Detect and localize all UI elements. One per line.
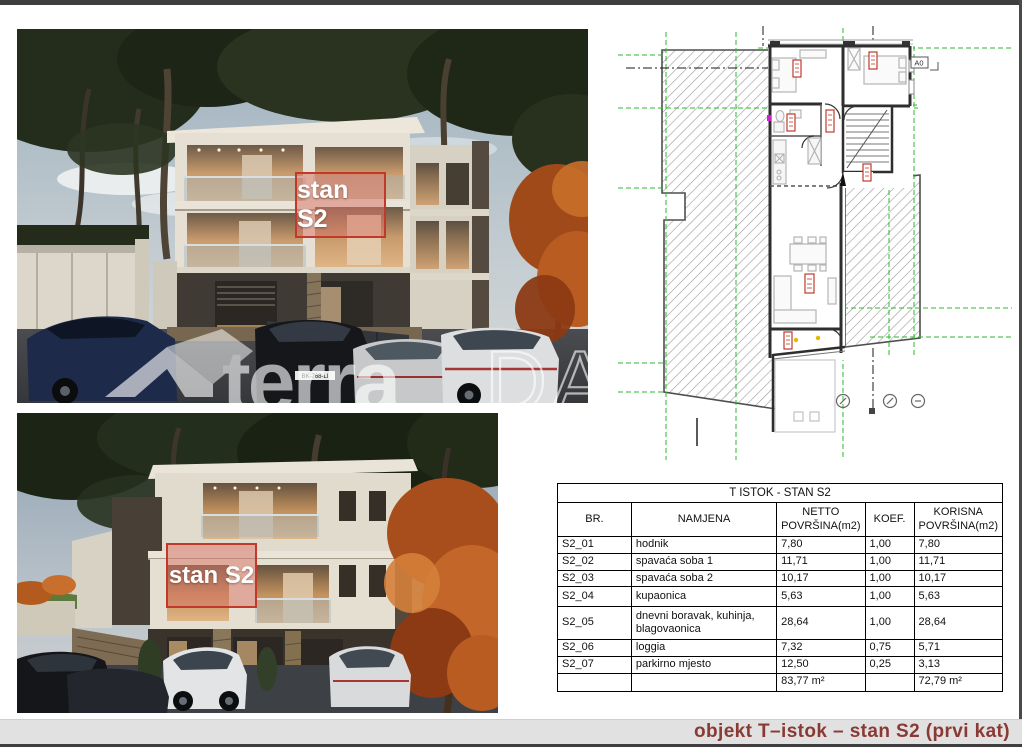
- table-row: S2_04 kupaonica 5,63 1,00 5,63: [558, 587, 1003, 607]
- col-header-koef: KOEF.: [865, 503, 914, 537]
- cell-netto: 11,71: [777, 553, 865, 570]
- watermark-brand-text: terra: [222, 334, 402, 403]
- cell-netto: 10,17: [777, 570, 865, 587]
- section-marker: A0: [911, 57, 938, 70]
- cell-korisna: 7,80: [914, 537, 1002, 554]
- col-header-namjena: NAMJENA: [631, 503, 776, 537]
- cell-korisna: 5,63: [914, 587, 1002, 607]
- watermark-outline-text: DALMAT: [485, 334, 588, 403]
- table-row: S2_03 spavaća soba 2 10,17 1,00 10,17: [558, 570, 1003, 587]
- col-header-korisna: KORISNA POVRŠINA(m2): [914, 503, 1002, 537]
- table-row: S2_06 loggia 7,32 0,75 5,71: [558, 640, 1003, 657]
- page-border-top: [0, 0, 1022, 5]
- autumn-tree: [509, 161, 588, 343]
- cell-netto: 7,80: [777, 537, 865, 554]
- cell-netto: 12,50: [777, 657, 865, 674]
- cell-br: S2_06: [558, 640, 632, 657]
- stan-s2-overlay-photo1: stan S2: [295, 172, 386, 238]
- cell-koef: 1,00: [865, 570, 914, 587]
- cell-br: S2_01: [558, 537, 632, 554]
- section-marker-label: A0: [914, 59, 923, 68]
- cell-korisna: 5,71: [914, 640, 1002, 657]
- cell-br: S2_05: [558, 607, 632, 640]
- render-photo-corner: [17, 413, 498, 713]
- floor-plan: A0: [618, 18, 1018, 480]
- col-header-netto: NETTO POVRŠINA(m2): [777, 503, 865, 537]
- page-title: objekt T–istok – stan S2 (prvi kat): [694, 721, 1010, 743]
- hatched-neighbor-right: [845, 175, 920, 347]
- cell-namjena: loggia: [631, 640, 776, 657]
- cell-netto: 28,64: [777, 607, 865, 640]
- cell-korisna: 28,64: [914, 607, 1002, 640]
- cell-namjena: spavaća soba 2: [631, 570, 776, 587]
- cell-namjena: parkirno mjesto: [631, 657, 776, 674]
- table-row: S2_07 parkirno mjesto 12,50 0,25 3,13: [558, 657, 1003, 674]
- stairwell: [843, 106, 892, 172]
- floor-plan-drawing: A0: [618, 18, 1018, 480]
- cell-korisna: 3,13: [914, 657, 1002, 674]
- table-totals-row: 83,77 m² 72,79 m²: [558, 673, 1003, 691]
- cell-br: S2_02: [558, 553, 632, 570]
- stan-s2-label-photo2: stan S2: [169, 562, 254, 590]
- table-row: S2_05 dnevni boravak, kuhinja, blagovaon…: [558, 607, 1003, 640]
- cell-br: S2_03: [558, 570, 632, 587]
- table-row: S2_02 spavaća soba 1 11,71 1,00 11,71: [558, 553, 1003, 570]
- cell-koef: 1,00: [865, 553, 914, 570]
- table-title: T ISTOK - STAN S2: [558, 484, 1003, 503]
- cell-netto: 5,63: [777, 587, 865, 607]
- cars: [17, 646, 411, 713]
- cell-br: S2_04: [558, 587, 632, 607]
- cell-korisna: 10,17: [914, 570, 1002, 587]
- hatched-neighbor-left: [662, 50, 776, 409]
- cell-empty: [865, 673, 914, 691]
- cell-koef: 1,00: [865, 607, 914, 640]
- cell-empty: [631, 673, 776, 691]
- cell-br: S2_07: [558, 657, 632, 674]
- cell-koef: 0,75: [865, 640, 914, 657]
- cell-namjena: kupaonica: [631, 587, 776, 607]
- areas-table: T ISTOK - STAN S2 BR. NAMJENA NETTO POVR…: [557, 483, 1003, 692]
- table-row: S2_01 hodnik 7,80 1,00 7,80: [558, 537, 1003, 554]
- lower-terrace: [773, 354, 835, 432]
- document-page: BK-768-LI terra DALMAT stan S2: [0, 0, 1022, 747]
- total-netto: 83,77 m²: [777, 673, 865, 691]
- utility-mark: [767, 115, 771, 121]
- cell-namjena: dnevni boravak, kuhinja, blagovaonica: [631, 607, 776, 640]
- col-header-br: BR.: [558, 503, 632, 537]
- stan-s2-overlay-photo2: stan S2: [166, 543, 257, 608]
- render-photo-corner-art: [17, 413, 498, 713]
- total-korisna: 72,79 m²: [914, 673, 1002, 691]
- cell-netto: 7,32: [777, 640, 865, 657]
- cell-empty: [558, 673, 632, 691]
- cell-namjena: spavaća soba 1: [631, 553, 776, 570]
- stan-s2-label-photo1: stan S2: [297, 176, 384, 234]
- cell-korisna: 11,71: [914, 553, 1002, 570]
- cell-koef: 0,25: [865, 657, 914, 674]
- cell-koef: 1,00: [865, 537, 914, 554]
- cell-koef: 1,00: [865, 587, 914, 607]
- cell-namjena: hodnik: [631, 537, 776, 554]
- bottom-title-bar: objekt T–istok – stan S2 (prvi kat): [0, 719, 1022, 744]
